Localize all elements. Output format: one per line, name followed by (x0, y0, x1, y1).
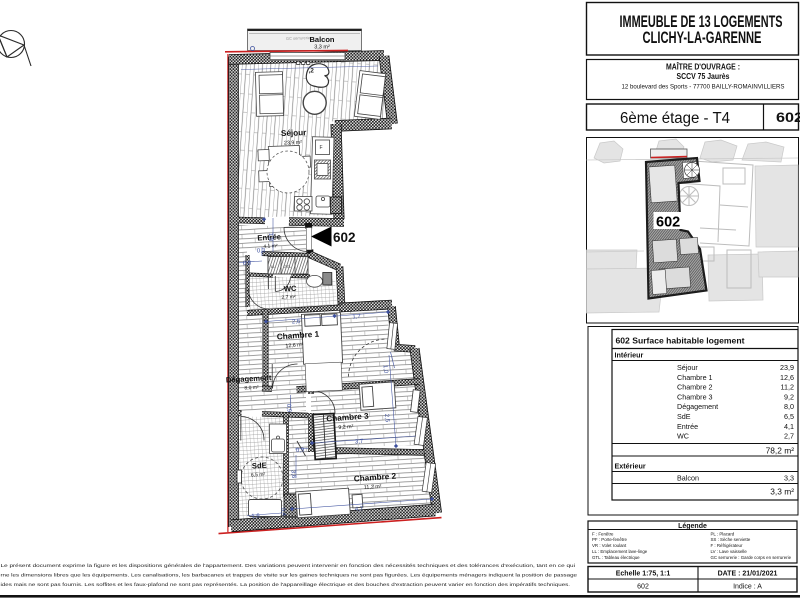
svg-text:4,1: 4,1 (784, 422, 794, 431)
svg-text:2,5: 2,5 (383, 414, 390, 424)
svg-text:2,7 m²: 2,7 m² (281, 294, 296, 301)
svg-text:6,5: 6,5 (784, 412, 794, 421)
svg-text:2,7: 2,7 (784, 432, 794, 441)
svg-text:Dégagement: Dégagement (677, 402, 718, 411)
svg-text:: Le présent document exprime: : Le présent document exprime la figure … (0, 563, 575, 568)
svg-text:Indice : A: Indice : A (733, 584, 762, 591)
svg-text:602: 602 (333, 230, 356, 245)
svg-text:Balcon: Balcon (677, 474, 699, 483)
svg-text:SCCV 75 Jaurès: SCCV 75 Jaurès (677, 72, 731, 81)
svg-text:VR : Volet roulant: VR : Volet roulant (592, 543, 627, 548)
svg-text:LL: LL (271, 264, 276, 269)
svg-text:0,8: 0,8 (243, 261, 252, 267)
svg-text:9,2: 9,2 (784, 392, 794, 401)
svg-text:Extérieur: Extérieur (615, 462, 646, 471)
svg-text:1,6: 1,6 (251, 513, 260, 520)
svg-text:1,8: 1,8 (267, 233, 273, 242)
svg-text:Chambre 3: Chambre 3 (677, 392, 713, 401)
svg-text:602: 602 (776, 109, 800, 125)
svg-text:GC serrurerie : Garde corps en: GC serrurerie : Garde corps en serrureri… (711, 555, 792, 560)
svg-text:WC: WC (677, 432, 689, 441)
svg-text:GC serrurerie: GC serrurerie (286, 35, 311, 41)
svg-text:Echelle 1:75, 1:1: Echelle 1:75, 1:1 (616, 571, 671, 578)
svg-text:11,2: 11,2 (781, 383, 794, 392)
svg-text:6ème étage - T4: 6ème étage - T4 (620, 110, 730, 127)
svg-text:1,0: 1,0 (382, 365, 389, 375)
svg-text:GTL : Tableau électrique: GTL : Tableau électrique (592, 555, 640, 560)
svg-text:Chambre 1: Chambre 1 (677, 373, 713, 382)
svg-text:SdE: SdE (252, 461, 267, 471)
svg-text:F : Fenêtre: F : Fenêtre (592, 531, 614, 536)
svg-text:8,0 m²: 8,0 m² (244, 385, 259, 392)
svg-text:PL : Placard: PL : Placard (711, 531, 735, 536)
svg-text:3,3: 3,3 (784, 474, 794, 483)
svg-text:0,9: 0,9 (285, 404, 292, 413)
svg-text:3,3 m²: 3,3 m² (770, 487, 794, 497)
svg-text:3,3 m²: 3,3 m² (314, 45, 330, 51)
svg-text:Séjour: Séjour (677, 363, 698, 372)
svg-text:6,5 m²: 6,5 m² (251, 472, 266, 479)
svg-text:8,0: 8,0 (784, 402, 794, 411)
svg-text:12,6: 12,6 (780, 373, 794, 382)
svg-text:3,7: 3,7 (355, 439, 364, 446)
svg-text:4,7: 4,7 (355, 506, 364, 513)
svg-text:PF : Porte-fenêtre: PF : Porte-fenêtre (592, 537, 627, 542)
svg-text:0,9: 0,9 (296, 447, 305, 454)
svg-text:DATE : 21/01/2021: DATE : 21/01/2021 (718, 571, 778, 578)
svg-text:WC: WC (284, 284, 298, 294)
svg-text:23,9 m²: 23,9 m² (284, 140, 302, 147)
svg-text:602 Surface habitable logement: 602 Surface habitable logement (616, 336, 745, 346)
svg-text:MAÎTRE D'OUVRAGE :: MAÎTRE D'OUVRAGE : (666, 63, 740, 72)
svg-text:LV : Lave vaisselle: LV : Lave vaisselle (711, 549, 748, 554)
svg-text:LL : Emplacement lave-linge: LL : Emplacement lave-linge (592, 549, 648, 554)
svg-text:2,6: 2,6 (292, 319, 301, 326)
svg-text:Légende: Légende (678, 523, 707, 530)
svg-text:1,7: 1,7 (352, 314, 361, 321)
svg-text:9,2 m²: 9,2 m² (338, 424, 354, 431)
svg-text:Séjour: Séjour (281, 128, 308, 138)
svg-text:12,6 m²: 12,6 m² (285, 342, 304, 349)
svg-text:Intérieur: Intérieur (615, 351, 644, 360)
svg-text:uides mais ne sont pas fournis: uides mais ne sont pas fournis. Les soff… (0, 582, 570, 587)
svg-text:602: 602 (656, 215, 680, 231)
svg-text:78,2 m²: 78,2 m² (766, 446, 795, 456)
svg-text:F : Réfrigérateur: F : Réfrigérateur (711, 543, 744, 548)
svg-text:23,9: 23,9 (780, 363, 794, 372)
svg-text:Chambre 2: Chambre 2 (677, 383, 713, 392)
svg-text:Entrée: Entrée (677, 422, 698, 431)
svg-text:CLICHY-LA-GARENNE: CLICHY-LA-GARENNE (643, 29, 762, 47)
svg-text:GTL: GTL (284, 264, 293, 269)
svg-text:,2: ,2 (309, 68, 315, 75)
svg-text:12 boulevard des Sports - 7770: 12 boulevard des Sports - 77700 BAILLY-R… (622, 84, 785, 91)
svg-text:602: 602 (637, 584, 649, 591)
svg-text:F: F (320, 145, 323, 151)
svg-text:SdE: SdE (677, 412, 691, 421)
svg-text:Balcon: Balcon (309, 35, 334, 44)
svg-text:SS : Sèche serviette: SS : Sèche serviette (711, 537, 751, 542)
svg-text:0,3: 0,3 (257, 248, 266, 254)
svg-text:3,6: 3,6 (290, 470, 297, 479)
svg-text:11,2 m²: 11,2 m² (364, 484, 382, 491)
svg-text:erne les dimensions libres que: erne les dimensions libres que les équip… (0, 573, 578, 578)
svg-text:4,1 m²: 4,1 m² (263, 243, 278, 250)
